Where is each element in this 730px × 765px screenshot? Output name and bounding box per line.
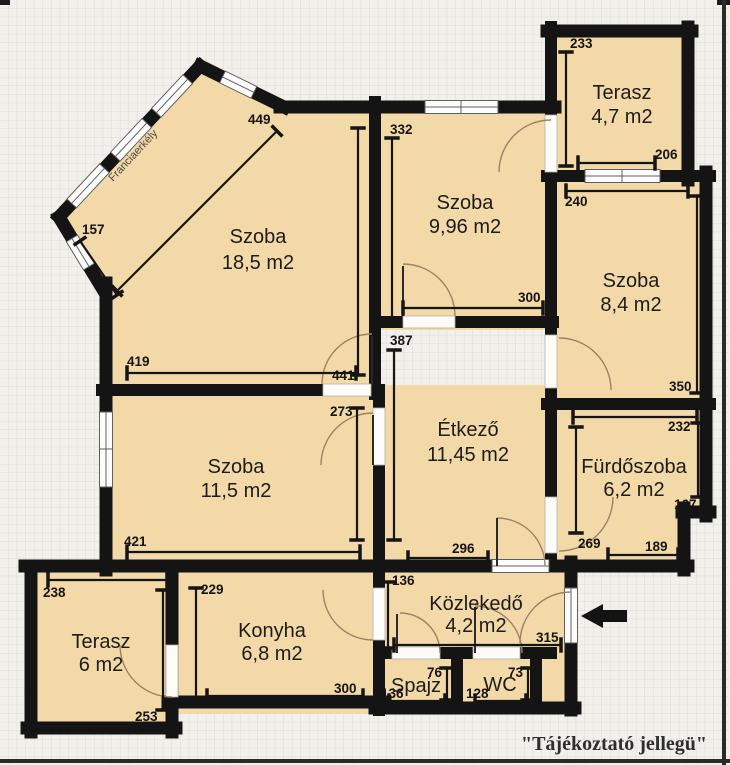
door-opening-room2 (403, 316, 455, 328)
door-opening-kitchen (373, 588, 385, 640)
dim-label: 273 (330, 404, 353, 419)
dim-label: 232 (668, 419, 691, 434)
dim-label: 233 (570, 36, 593, 51)
dim-label: 419 (127, 354, 150, 369)
room-area-szoba-115: 11,5 m2 (201, 480, 272, 502)
disclaimer-text: "Tájékoztató jellegü" (521, 733, 707, 755)
room-label-wc: WC (483, 674, 516, 696)
door-opening-terrace6 (166, 645, 178, 697)
door-opening-bathroom (545, 497, 557, 553)
door-opening-wc (473, 647, 520, 659)
room-area-kozlekedo: 4,2 m2 (445, 615, 506, 637)
dim-label: 269 (578, 536, 601, 551)
door-opening-pantry (392, 647, 440, 659)
room-label-szoba-996: Szoba (437, 192, 495, 214)
dim-label: 238 (43, 585, 66, 600)
frame-line-right (722, 0, 726, 765)
dim-label: 296 (452, 541, 475, 556)
dim-label: 253 (135, 709, 158, 724)
dim-label: 449 (248, 112, 271, 127)
dim-label: 315 (536, 630, 559, 645)
room-label-konyha: Konyha (238, 620, 307, 642)
room-label-terasz-47: Terasz (593, 82, 652, 104)
room-label-szoba-84: Szoba (603, 270, 661, 292)
dim-label: 240 (565, 194, 588, 209)
dim-label: 229 (201, 582, 224, 597)
room-label-szoba-115: Szoba (208, 456, 266, 478)
door-opening-terrace47 (545, 115, 557, 172)
dim-label: 189 (645, 539, 668, 554)
dim-label: 206 (655, 147, 678, 162)
room-label-spajz: Spajz (391, 675, 441, 697)
dim-label: 421 (124, 534, 147, 549)
dim-label: 441 (332, 368, 355, 383)
room-area-terasz-47: 4,7 m2 (591, 106, 652, 128)
dim-label: 300 (518, 290, 541, 305)
dim-label: 300 (334, 681, 357, 696)
room-label-etkezo: Étkező (437, 418, 498, 441)
dim-label: 157 (82, 222, 105, 237)
room-label-szoba-185: Szoba (230, 226, 288, 248)
dim-label: 332 (390, 122, 413, 137)
room-label-terasz-6: Terasz (72, 631, 131, 653)
floor-plan-page: 449 157 419 441 332 300 233 206 240 350 … (0, 0, 730, 765)
door-opening-room5 (373, 408, 385, 465)
frame-line-bottom (0, 759, 730, 763)
room-label-kozlekedo: Közlekedő (429, 593, 522, 615)
room-area-furdoszoba: 6,2 m2 (603, 479, 664, 501)
door-opening-room3 (545, 335, 557, 388)
frame-mark-top-left (0, 0, 10, 5)
dim-label: 350 (669, 379, 692, 394)
room-area-terasz-6: 6 m2 (79, 654, 123, 676)
dim-label: 167 (674, 497, 697, 512)
dim-label: 136 (392, 573, 415, 588)
room-label-furdoszoba: Fürdőszoba (581, 456, 687, 478)
room-area-konyha: 6,8 m2 (241, 643, 302, 665)
floor-plan-canvas: 449 157 419 441 332 300 233 206 240 350 … (0, 0, 730, 765)
room-area-szoba-84: 8,4 m2 (600, 294, 661, 316)
door-opening-room1 (323, 384, 371, 396)
room-area-etkezo: 11,45 m2 (427, 444, 509, 466)
room-area-szoba-996: 9,96 m2 (429, 216, 501, 238)
dim-label: 387 (390, 333, 413, 348)
room-area-szoba-185: 18,5 m2 (222, 252, 294, 274)
